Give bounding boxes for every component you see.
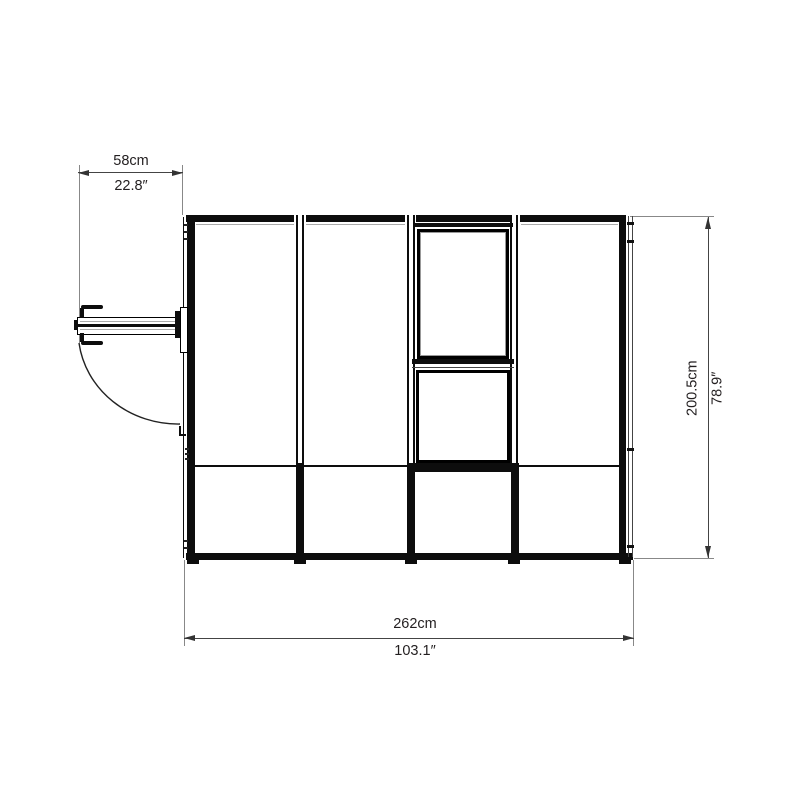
dim-arrow-down-icon xyxy=(705,546,711,558)
foot-anchor xyxy=(619,560,631,564)
height-cm-label: 200.5cm xyxy=(684,350,701,426)
mid-rail xyxy=(195,465,296,467)
door-latch xyxy=(179,434,186,436)
left-frame-outer-line xyxy=(183,217,184,558)
mullion-lower xyxy=(511,463,519,558)
window-lower-sash xyxy=(416,370,510,463)
right-frame-clip xyxy=(627,240,634,243)
door-handle xyxy=(81,305,103,309)
right-frame-clip xyxy=(627,222,634,225)
top-rail xyxy=(520,215,620,222)
extension-line-height-bottom xyxy=(634,558,714,559)
left-frame-detail xyxy=(185,448,189,450)
right-frame-post xyxy=(619,215,626,558)
width-cm-label: 262cm xyxy=(350,614,480,634)
door-hinge-plate xyxy=(180,307,188,353)
dim-arrow-right-icon xyxy=(172,170,183,176)
panel-top-line xyxy=(521,224,618,225)
window-sill-bar xyxy=(412,359,514,364)
left-frame-post xyxy=(187,215,195,558)
door-width-inch-label: 22.8″ xyxy=(93,176,169,196)
top-rail xyxy=(306,215,405,222)
right-frame-clip xyxy=(627,545,634,548)
mullion-upper xyxy=(407,215,415,465)
window-upper-sash xyxy=(417,229,509,359)
mullion-upper xyxy=(510,215,518,465)
left-frame-detail xyxy=(185,453,189,455)
left-frame-detail xyxy=(184,540,188,542)
left-frame-detail xyxy=(185,458,189,460)
window-sill-line xyxy=(412,367,514,368)
panel-top-line xyxy=(306,224,405,225)
right-frame-clip xyxy=(627,448,634,451)
greenhouse-elevation-drawing: 58cm 22.8″ 200.5cm 78.9″ 262cm 103.1″ xyxy=(0,0,800,800)
mullion-upper xyxy=(296,215,304,465)
door-end-cap xyxy=(74,320,78,330)
left-frame-detail xyxy=(184,238,188,240)
mullion-lower xyxy=(407,463,415,558)
dim-arrow-left-icon xyxy=(78,170,89,176)
mullion-lower xyxy=(296,463,304,558)
window-bottom-bar xyxy=(411,463,515,472)
door-handle xyxy=(80,333,84,342)
door-handle xyxy=(81,341,103,345)
mid-rail xyxy=(518,465,619,467)
right-frame-line xyxy=(628,216,629,557)
door-handle xyxy=(80,308,84,318)
panel-top-line xyxy=(196,224,294,225)
base-rail xyxy=(186,553,633,560)
left-frame-detail xyxy=(184,231,188,233)
top-rail xyxy=(416,215,510,222)
door-swing-arc xyxy=(0,0,800,800)
door-open-edge xyxy=(77,317,182,335)
dimension-line-door-width xyxy=(78,172,183,173)
right-frame-line xyxy=(632,216,633,557)
extension-line-width-left xyxy=(184,560,185,646)
left-frame-detail xyxy=(184,547,188,549)
dimension-line-width xyxy=(184,638,634,639)
height-inch-label: 78.9″ xyxy=(709,362,726,414)
foot-anchor xyxy=(508,560,520,564)
left-frame-detail xyxy=(184,224,188,226)
foot-anchor xyxy=(405,560,417,564)
dim-arrow-up-icon xyxy=(705,217,711,229)
dim-arrow-right-icon xyxy=(623,635,634,641)
extension-line-height-top xyxy=(630,216,714,217)
dim-arrow-left-icon xyxy=(184,635,195,641)
mid-rail xyxy=(304,465,407,467)
foot-anchor xyxy=(294,560,306,564)
extension-line-width-right xyxy=(633,560,634,646)
width-inch-label: 103.1″ xyxy=(350,641,480,661)
door-width-cm-label: 58cm xyxy=(93,151,169,171)
top-rail xyxy=(186,215,294,222)
window-head-bar xyxy=(413,223,513,227)
foot-anchor xyxy=(187,560,199,564)
